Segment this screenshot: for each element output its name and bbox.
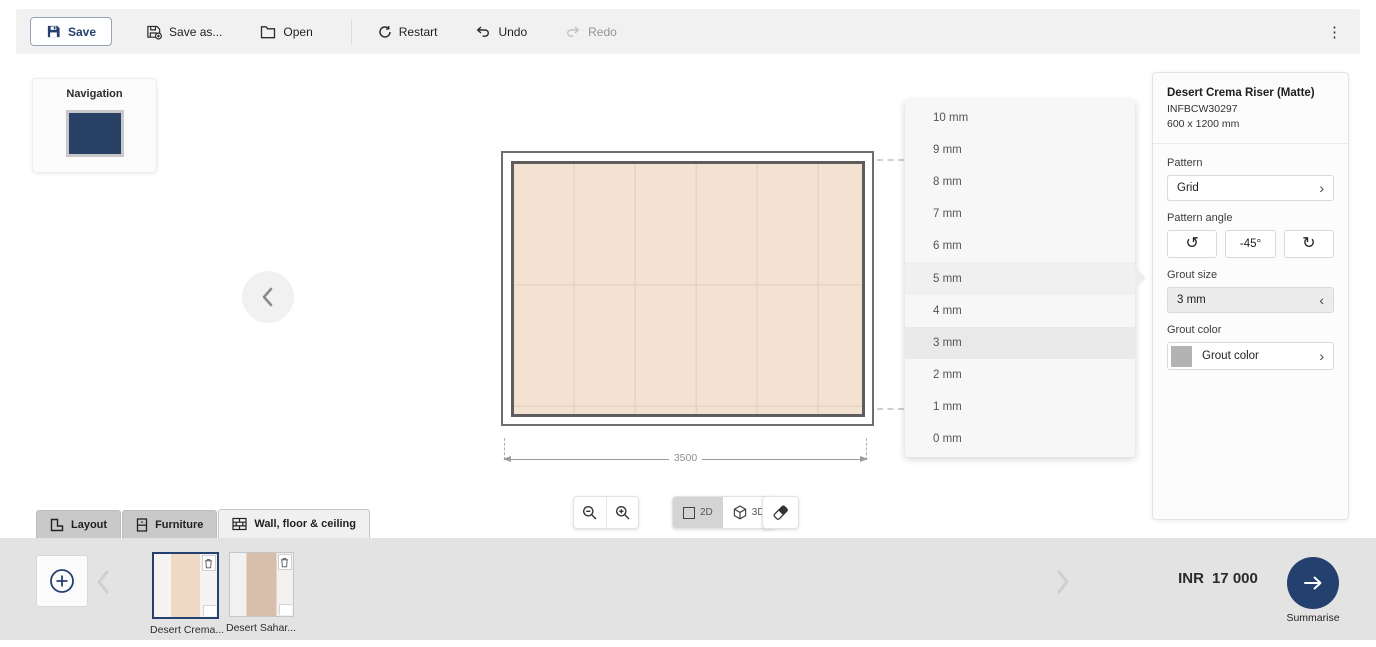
open-label: Open [283,25,312,39]
app-window: Save Save as... Open Restart Undo [0,0,1376,647]
grout-size-option[interactable]: 8 mm [905,166,1135,198]
undo-label: Undo [498,25,527,39]
square-2d-icon [683,507,695,519]
add-product-button[interactable] [36,555,88,607]
price-value: 17 000 [1212,570,1258,587]
thumb-corner-flag [203,605,216,616]
wall-tiles-icon [232,517,247,531]
wall-tile-surface[interactable] [511,161,865,417]
grout-size-option[interactable]: 9 mm [905,134,1135,166]
grout-size-option[interactable]: 2 mm [905,359,1135,391]
wall-width-label: 3500 [504,452,867,464]
product-thumb-desert-sahara[interactable]: Desert Sahar... [226,552,296,634]
zoom-out-button[interactable] [574,497,606,528]
more-options-icon[interactable]: ⋮ [1323,23,1346,41]
delete-product-button[interactable] [278,554,292,570]
connector-dashed-top [877,159,904,161]
pattern-angle-value[interactable]: -45° [1225,230,1275,258]
toolbar-divider [351,19,352,45]
top-toolbar: Save Save as... Open Restart Undo [16,9,1360,54]
tab-wall-label: Wall, floor & ceiling [254,518,356,530]
grout-color-label: Grout color [1167,324,1334,336]
grout-size-option-selected[interactable]: 3 mm [905,327,1135,359]
properties-panel: Desert Crema Riser (Matte) INFBCW30297 6… [1152,72,1349,520]
rotate-cw-icon: ↻ [1302,236,1315,252]
tab-furniture-label: Furniture [155,519,203,531]
product-code: INFBCW30297 [1167,103,1334,115]
total-price: INR17 000 [1163,570,1273,587]
grout-color-select[interactable]: Grout color › [1167,342,1334,370]
navigation-minimap[interactable] [66,110,124,157]
price-currency: INR [1178,570,1204,587]
view-mode-toggle: 2D 3D [672,496,776,529]
grout-size-option[interactable]: 1 mm [905,391,1135,423]
chevron-left-icon: ‹ [1319,292,1324,308]
product-thumb-desert-crema[interactable]: Desert Crema... [150,552,220,636]
undo-button[interactable]: Undo [475,25,527,39]
redo-label: Redo [588,25,617,39]
zoom-in-button[interactable] [606,497,638,528]
furniture-icon [136,518,148,532]
grout-size-label: Grout size [1167,269,1334,281]
scroll-left-button[interactable] [94,566,112,598]
thumb-corner-flag [279,604,292,615]
rotate-ccw-icon: ↺ [1185,236,1198,252]
folder-icon [260,25,276,39]
dimension-line: 3500 [504,459,867,460]
grout-size-dropdown: 10 mm 9 mm 8 mm 7 mm 6 mm 5 mm 4 mm 3 mm… [905,100,1135,457]
navigation-panel: Navigation [32,78,157,173]
mode-2d-label: 2D [700,507,713,518]
tab-furniture[interactable]: Furniture [122,510,217,538]
zoom-out-icon [582,505,598,521]
rotate-cw-button[interactable]: ↻ [1284,230,1334,258]
navigation-title: Navigation [33,88,156,100]
connector-dashed-bottom [877,408,904,410]
save-icon [46,24,61,39]
zoom-in-icon [615,505,631,521]
grout-color-swatch [1171,346,1192,367]
save-as-label: Save as... [169,25,222,39]
grout-size-option[interactable]: 4 mm [905,295,1135,327]
cube-3d-icon [733,505,747,520]
grout-color-value: Grout color [1202,350,1319,362]
eraser-button[interactable] [762,496,799,529]
summarise-label: Summarise [1277,612,1349,624]
grout-size-option[interactable]: 6 mm [905,230,1135,262]
chevron-right-icon: › [1319,348,1324,364]
grout-size-select[interactable]: 3 mm ‹ [1167,287,1334,313]
summarise-button[interactable] [1287,557,1339,609]
save-as-icon [146,24,162,40]
open-button[interactable]: Open [260,25,312,39]
undo-icon [475,25,491,38]
rotate-ccw-button[interactable]: ↺ [1167,230,1217,258]
delete-product-button[interactable] [202,555,216,571]
tab-layout[interactable]: Layout [36,510,121,538]
grout-size-option-hovered[interactable]: 5 mm [905,262,1135,294]
restart-label: Restart [399,25,438,39]
grout-size-option[interactable]: 7 mm [905,198,1135,230]
zoom-controls [573,496,639,529]
tab-layout-label: Layout [71,519,107,531]
collapse-left-button[interactable] [242,271,294,323]
grout-size-option[interactable]: 10 mm [905,102,1135,134]
grout-size-value: 3 mm [1177,294,1206,306]
restart-button[interactable]: Restart [378,25,438,39]
product-thumbnail[interactable] [152,552,219,619]
pattern-angle-label: Pattern angle [1167,212,1334,224]
layout-icon [50,518,64,532]
wall-frame [501,151,874,426]
save-label: Save [68,25,96,39]
pattern-value: Grid [1177,182,1199,194]
save-button[interactable]: Save [30,17,112,46]
save-as-button[interactable]: Save as... [146,24,222,40]
eraser-icon [772,504,789,521]
redo-button[interactable]: Redo [565,25,617,39]
mode-2d-button[interactable]: 2D [673,497,723,528]
pattern-angle-controls: ↺ -45° ↻ [1167,230,1334,258]
product-name: Desert Crema Riser (Matte) [1167,86,1334,100]
pattern-select[interactable]: Grid › [1167,175,1334,201]
arrow-right-icon [1302,574,1324,592]
chevron-right-icon: › [1319,180,1324,196]
product-size: 600 x 1200 mm [1167,118,1334,130]
product-thumb-label: Desert Sahar... [226,622,296,634]
product-thumbnail[interactable] [229,552,294,617]
tab-wall-floor-ceiling[interactable]: Wall, floor & ceiling [218,509,370,538]
scroll-right-button[interactable] [1054,566,1072,598]
dropdown-pointer [1135,267,1146,289]
restart-icon [378,25,392,39]
product-thumb-label: Desert Crema... [150,624,220,636]
grout-size-option[interactable]: 0 mm [905,423,1135,455]
panel-divider [1153,143,1348,144]
chevron-left-icon [258,285,278,309]
bottom-tabbar: Layout Furniture Wall, floor & ceiling [36,510,371,538]
pattern-label: Pattern [1167,157,1334,169]
add-circle-icon [48,567,76,595]
redo-icon [565,25,581,38]
